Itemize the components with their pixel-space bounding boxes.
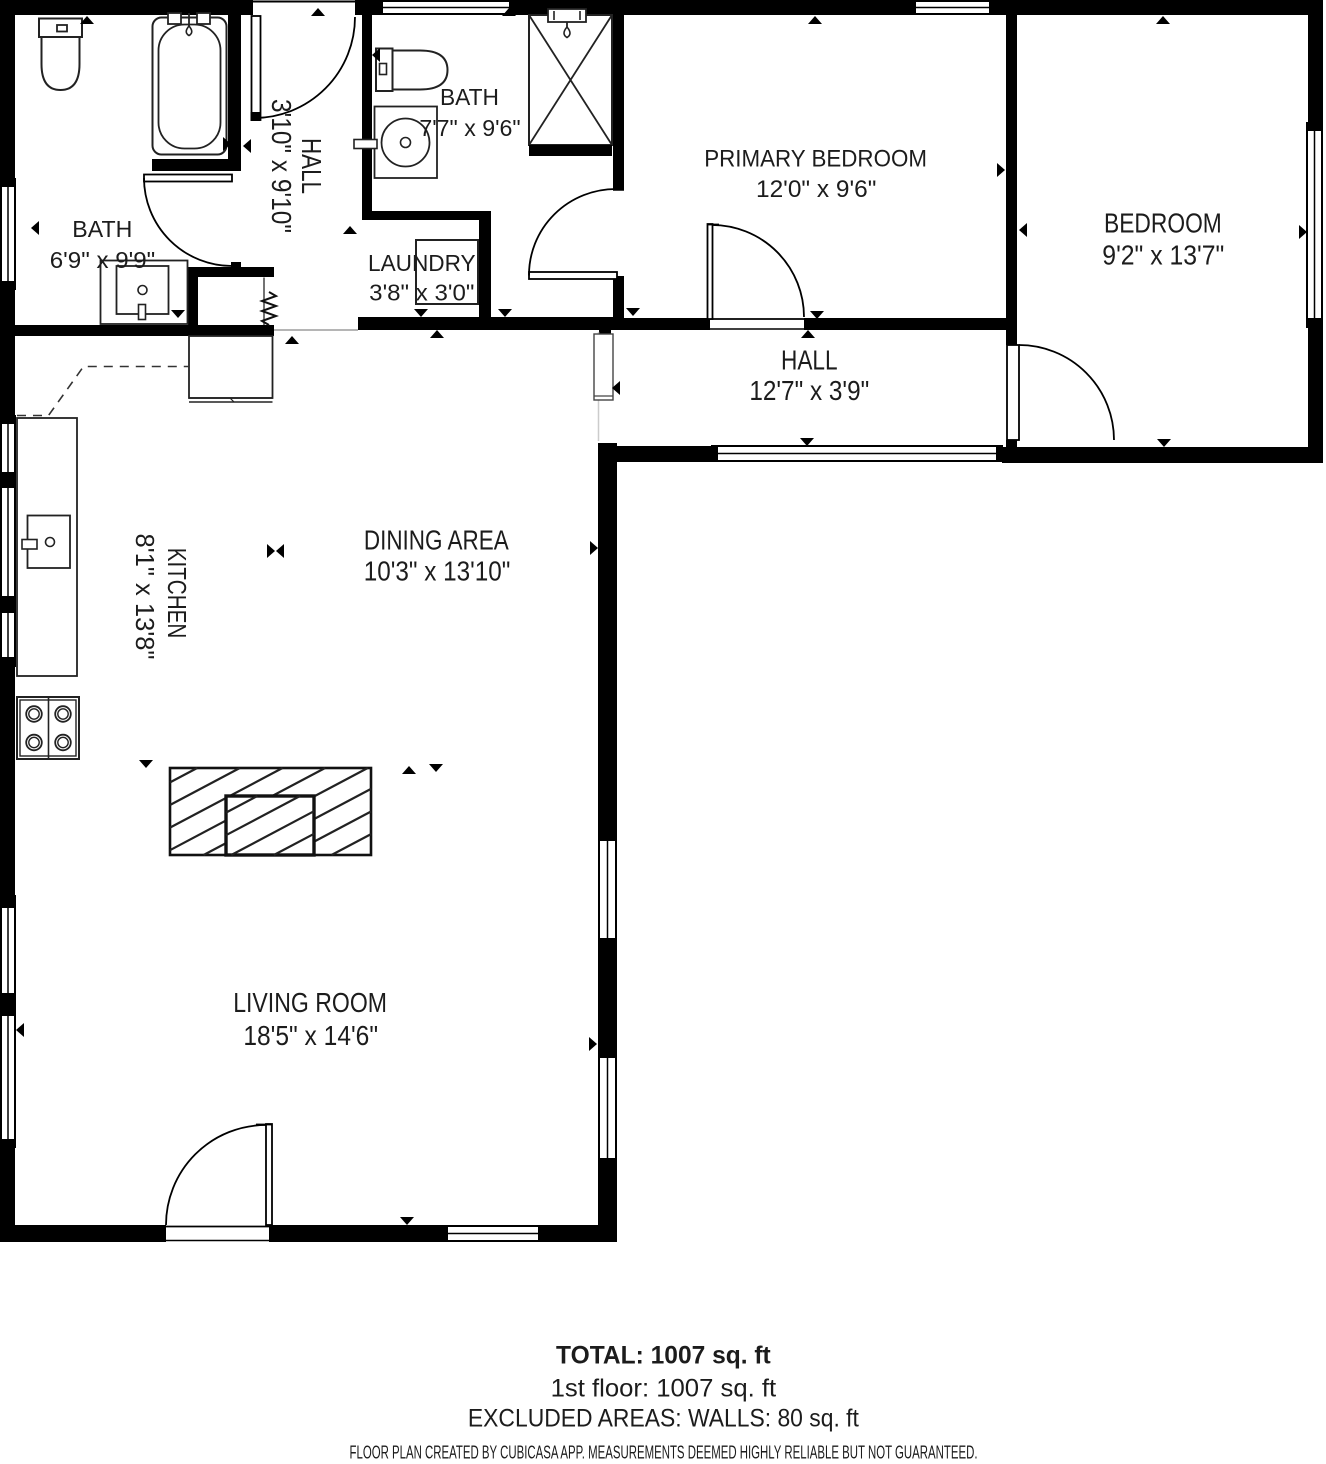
svg-text:DINING AREA: DINING AREA xyxy=(364,524,509,555)
svg-text:BATH: BATH xyxy=(72,216,132,242)
svg-text:6'9" x 9'9": 6'9" x 9'9" xyxy=(50,247,156,273)
svg-text:HALL: HALL xyxy=(781,345,838,376)
svg-text:KITCHEN: KITCHEN xyxy=(162,548,192,639)
svg-text:18'5" x 14'6": 18'5" x 14'6" xyxy=(243,1020,378,1051)
svg-text:LAUNDRY: LAUNDRY xyxy=(368,250,476,276)
svg-text:BEDROOM: BEDROOM xyxy=(1104,207,1222,238)
svg-text:7'7" x 9'6": 7'7" x 9'6" xyxy=(419,115,520,141)
svg-text:HALL: HALL xyxy=(296,138,327,194)
svg-text:12'0" x 9'6": 12'0" x 9'6" xyxy=(756,176,876,203)
svg-text:1st floor: 1007 sq. ft: 1st floor: 1007 sq. ft xyxy=(551,1375,777,1403)
svg-text:EXCLUDED AREAS: WALLS: 80 sq.: EXCLUDED AREAS: WALLS: 80 sq. ft xyxy=(468,1405,859,1433)
svg-text:LIVING ROOM: LIVING ROOM xyxy=(233,987,387,1018)
svg-text:PRIMARY BEDROOM: PRIMARY BEDROOM xyxy=(704,146,927,173)
svg-text:BATH: BATH xyxy=(440,84,499,110)
svg-text:12'7" x 3'9": 12'7" x 3'9" xyxy=(749,375,869,406)
svg-text:FLOOR PLAN CREATED BY CUBICASA: FLOOR PLAN CREATED BY CUBICASA APP. MEAS… xyxy=(350,1443,978,1463)
svg-text:3'10" x 9'10": 3'10" x 9'10" xyxy=(266,99,297,233)
svg-text:3'8" x 3'0": 3'8" x 3'0" xyxy=(369,280,474,306)
svg-text:9'2" x 13'7": 9'2" x 13'7" xyxy=(1102,240,1224,271)
svg-text:TOTAL: 1007 sq. ft: TOTAL: 1007 sq. ft xyxy=(556,1342,771,1370)
svg-text:10'3" x 13'10": 10'3" x 13'10" xyxy=(364,556,511,587)
svg-text:8'1" x 13'8": 8'1" x 13'8" xyxy=(130,534,160,660)
